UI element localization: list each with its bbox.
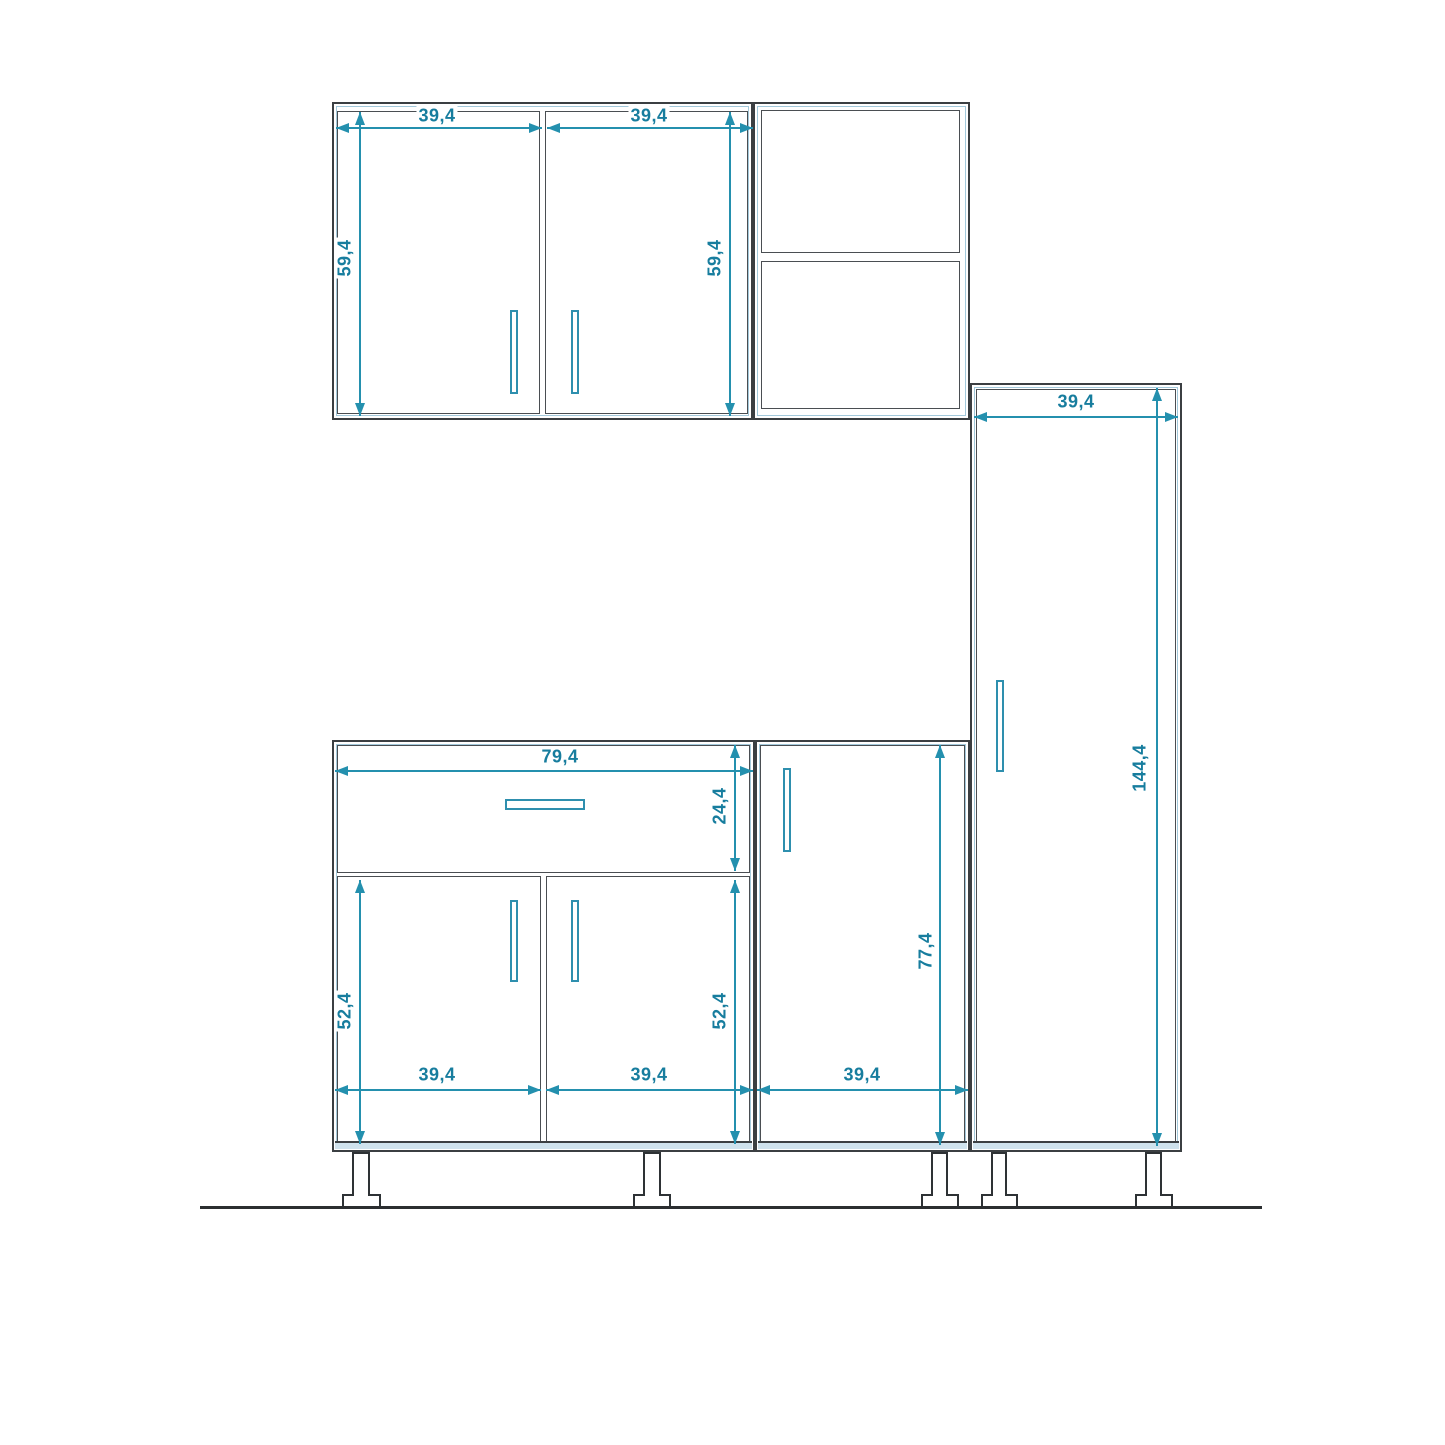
dim-label-base-left-door-width: 39,4 — [416, 1065, 457, 1086]
wall-cabinet-left-door-handle — [510, 310, 518, 394]
leg-stem — [352, 1152, 370, 1196]
leg-stem — [1145, 1152, 1162, 1196]
single-base-cabinet-door-handle — [783, 768, 791, 852]
base-cabinet-left-door-handle — [510, 900, 518, 982]
dim-label-wall-left-height: 59,4 — [335, 237, 356, 278]
dim-line-single-width — [757, 1089, 968, 1091]
dim-label-tall-width: 39,4 — [1055, 392, 1096, 413]
dim-label-single-width: 39,4 — [841, 1065, 882, 1086]
dim-label-wall-right-width: 39,4 — [628, 106, 669, 127]
leg-stem — [931, 1152, 948, 1196]
dim-line-base-left-door-width — [335, 1089, 541, 1091]
dim-line-wall-left-height — [359, 112, 361, 416]
dim-line-base-width — [335, 770, 753, 772]
dim-label-base-width: 79,4 — [539, 747, 580, 768]
dim-label-base-left-door-height: 52,4 — [335, 990, 356, 1031]
dim-label-base-right-door-width: 39,4 — [628, 1065, 669, 1086]
shelf-opening-top — [761, 110, 960, 253]
dim-label-base-right-door-height: 52,4 — [710, 990, 731, 1031]
dim-line-wall-left-width — [336, 127, 542, 129]
dim-line-tall-width — [974, 416, 1178, 418]
dim-line-base-left-door-height — [359, 880, 361, 1144]
dim-label-wall-right-height: 59,4 — [705, 237, 726, 278]
open-shelf-unit — [753, 102, 970, 420]
ground-line — [200, 1206, 1262, 1209]
wall-cabinet-right-door-handle — [571, 310, 579, 394]
dim-line-tall-height — [1156, 388, 1158, 1146]
dim-line-base-right-door-height — [734, 880, 736, 1144]
dim-label-single-door-height: 77,4 — [916, 930, 937, 971]
dim-line-wall-right-height — [729, 112, 731, 416]
leg-stem — [991, 1152, 1007, 1196]
dim-label-wall-left-width: 39,4 — [416, 106, 457, 127]
dim-line-single-door-height — [939, 745, 941, 1145]
tall-cabinet-door-handle — [996, 680, 1004, 772]
dim-line-wall-right-width — [547, 127, 753, 129]
technical-drawing-canvas: 39,4 39,4 39,4 79,4 39,4 39,4 39,4 59,4 … — [0, 0, 1445, 1445]
leg-stem — [643, 1152, 661, 1196]
dim-line-drawer-height — [734, 745, 736, 871]
dim-line-base-right-door-width — [546, 1089, 753, 1091]
base-cabinet-right-door-handle — [571, 900, 579, 982]
wall-cabinet — [332, 102, 753, 420]
shelf-opening-bottom — [761, 261, 960, 409]
base-cabinet-plinth-band — [335, 1141, 752, 1149]
base-cabinet-drawer-handle — [505, 799, 585, 810]
tall-cabinet-plinth-band — [973, 1141, 1179, 1149]
dim-label-drawer-height: 24,4 — [710, 785, 731, 826]
dim-label-tall-height: 144,4 — [1130, 742, 1151, 794]
